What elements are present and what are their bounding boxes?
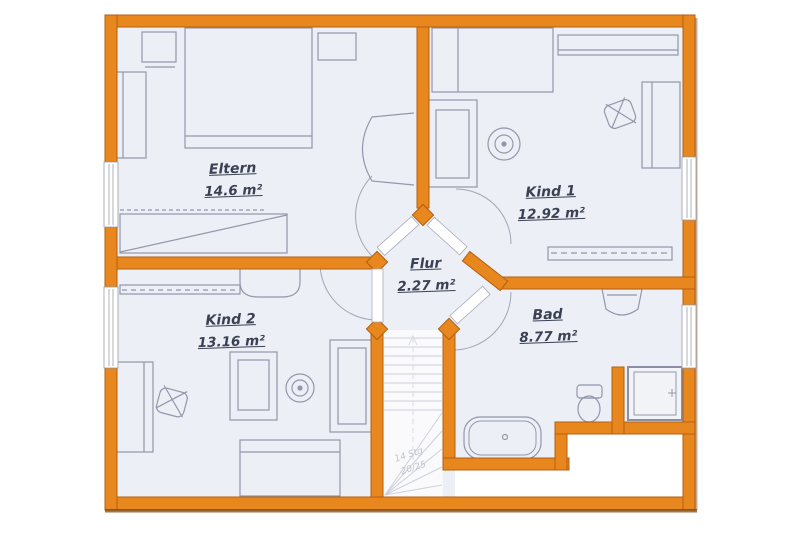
room-label-eltern: Eltern 14.6 m²	[203, 157, 263, 203]
curved-cabinet-eltern	[363, 113, 415, 185]
wall-bathtub-niche	[443, 458, 569, 470]
room-area-kind1: 12.92 m²	[517, 202, 585, 226]
room-label-bad: Bad 8.77 m²	[518, 303, 578, 349]
room-name-flur: Flur	[396, 252, 455, 276]
floor-plan-canvas: 14 Stg 20/25	[0, 0, 800, 537]
void-area-bottom-right	[565, 432, 689, 503]
room-name-kind1: Kind 1	[517, 180, 585, 204]
room-label-kind2: Kind 2 13.16 m²	[197, 308, 266, 354]
door-opening-kind2	[372, 269, 383, 322]
shower	[628, 367, 682, 420]
wall-eltern-kind1	[417, 27, 429, 208]
room-name-kind2: Kind 2	[197, 308, 265, 332]
room-area-bad: 8.77 m²	[519, 325, 578, 349]
wall-eltern-kind2	[117, 257, 373, 269]
wall-kind1-bad	[498, 277, 695, 289]
window-left-lower	[104, 287, 118, 368]
room-area-kind2: 13.16 m²	[197, 330, 265, 354]
room-label-kind1: Kind 1 12.92 m²	[517, 180, 586, 226]
wall-stair-bad	[443, 334, 455, 470]
room-name-eltern: Eltern	[203, 157, 262, 181]
wall-kind2-stair	[371, 334, 383, 497]
window-left-upper	[104, 162, 118, 227]
wall-exterior-bottom	[105, 497, 695, 510]
wall-exterior-right-lower	[683, 368, 695, 510]
room-area-eltern: 14.6 m²	[204, 179, 263, 203]
wall-exterior-right-middle	[683, 220, 695, 305]
room-label-flur: Flur 2.27 m²	[396, 252, 456, 298]
wall-exterior-left-middle	[105, 227, 117, 287]
wall-exterior-left-lower	[105, 368, 117, 510]
window-right-lower	[682, 305, 696, 368]
room-name-bad: Bad	[518, 303, 577, 327]
window-right-upper	[682, 157, 696, 220]
wall-exterior-right-upper	[683, 15, 695, 157]
wall-shadow-bottom	[105, 509, 697, 513]
wall-exterior-top	[105, 15, 695, 27]
wall-wc-shower	[612, 367, 624, 434]
wall-exterior-left-upper	[105, 15, 117, 162]
wall-shadow-right	[695, 18, 698, 510]
room-area-flur: 2.27 m²	[397, 274, 456, 298]
wall-bad-bottom	[555, 422, 695, 434]
